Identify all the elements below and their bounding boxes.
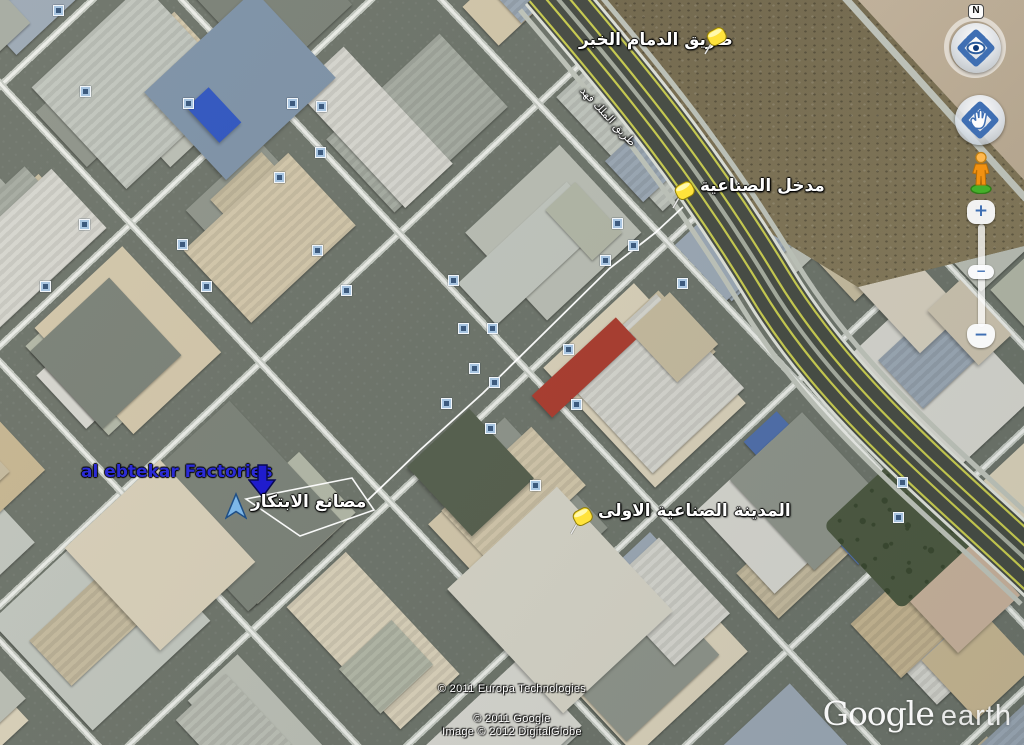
photo-icon[interactable] [563,344,574,355]
photo-icon[interactable] [448,275,459,286]
zoom-in-button[interactable]: + [967,200,995,224]
photo-icon[interactable] [441,398,452,409]
logo-earth: earth [941,700,1012,733]
photo-icon[interactable] [201,281,212,292]
pegman-icon [969,150,993,194]
photo-icon[interactable] [274,172,285,183]
placemark-label-first-industrial-city[interactable]: المدينة الصناعية الاولى [598,501,791,521]
photo-icon[interactable] [316,101,327,112]
photo-icon[interactable] [571,399,582,410]
north-button[interactable]: N [968,4,984,19]
yellow-pushpin-icon [670,180,696,210]
photo-icon[interactable] [600,255,611,266]
photo-icon[interactable] [177,239,188,250]
look-joystick[interactable] [951,23,1001,73]
photo-icon[interactable] [897,477,908,488]
photo-icon[interactable] [312,245,323,256]
photo-icon[interactable] [489,377,500,388]
photo-icon[interactable] [79,219,90,230]
placemark-label-industrial-entrance[interactable]: مدخل الصناعية [700,176,825,196]
photo-icon[interactable] [485,423,496,434]
yellow-pushpin-icon [568,506,594,536]
photo-icon[interactable] [469,363,480,374]
route-path [0,0,1024,745]
placemark-label-al-ebtekar-ar[interactable]: مصانع الابتكار [251,492,366,512]
satellite-map[interactable]: طريق الملك فهد طريق الدمام الخبر مدخل ال… [0,0,1024,745]
placemark-label-al-ebtekar-en[interactable]: al ebtekar Factories [81,462,272,482]
photo-icon[interactable] [287,98,298,109]
photo-icon[interactable] [677,278,688,289]
photo-icon[interactable] [183,98,194,109]
yellow-pushpin-icon [702,26,728,56]
logo-google: Google [823,694,934,733]
gps-triangle-marker [225,492,247,525]
photo-icon[interactable] [530,480,541,491]
pushpin-first-industrial-city[interactable] [568,506,594,541]
photo-icon[interactable] [893,512,904,523]
photo-icon[interactable] [40,281,51,292]
navigation-triangle-icon [225,492,247,520]
photo-icon[interactable] [53,5,64,16]
photo-icon[interactable] [341,285,352,296]
look-down-arrow-icon [969,57,983,64]
photo-icon[interactable] [458,323,469,334]
move-right-arrow-icon [989,113,996,127]
look-right-arrow-icon [985,41,992,55]
zoom-out-button[interactable]: − [967,324,995,348]
look-up-arrow-icon [969,33,983,40]
move-down-arrow-icon [973,129,987,136]
photo-icon[interactable] [612,218,623,229]
zoom-slider-handle[interactable]: − [968,265,994,279]
photo-icon[interactable] [628,240,639,251]
move-left-arrow-icon [965,113,972,127]
google-earth-logo: Google earth [823,694,1012,733]
move-joystick[interactable] [955,95,1005,145]
pushpin-dammam-khobar-road[interactable] [702,26,728,61]
pegman[interactable] [969,150,993,199]
photo-icon[interactable] [80,86,91,97]
photo-icon[interactable] [315,147,326,158]
photo-icon[interactable] [487,323,498,334]
pushpin-industrial-entrance[interactable] [670,180,696,215]
look-left-arrow-icon [961,41,968,55]
